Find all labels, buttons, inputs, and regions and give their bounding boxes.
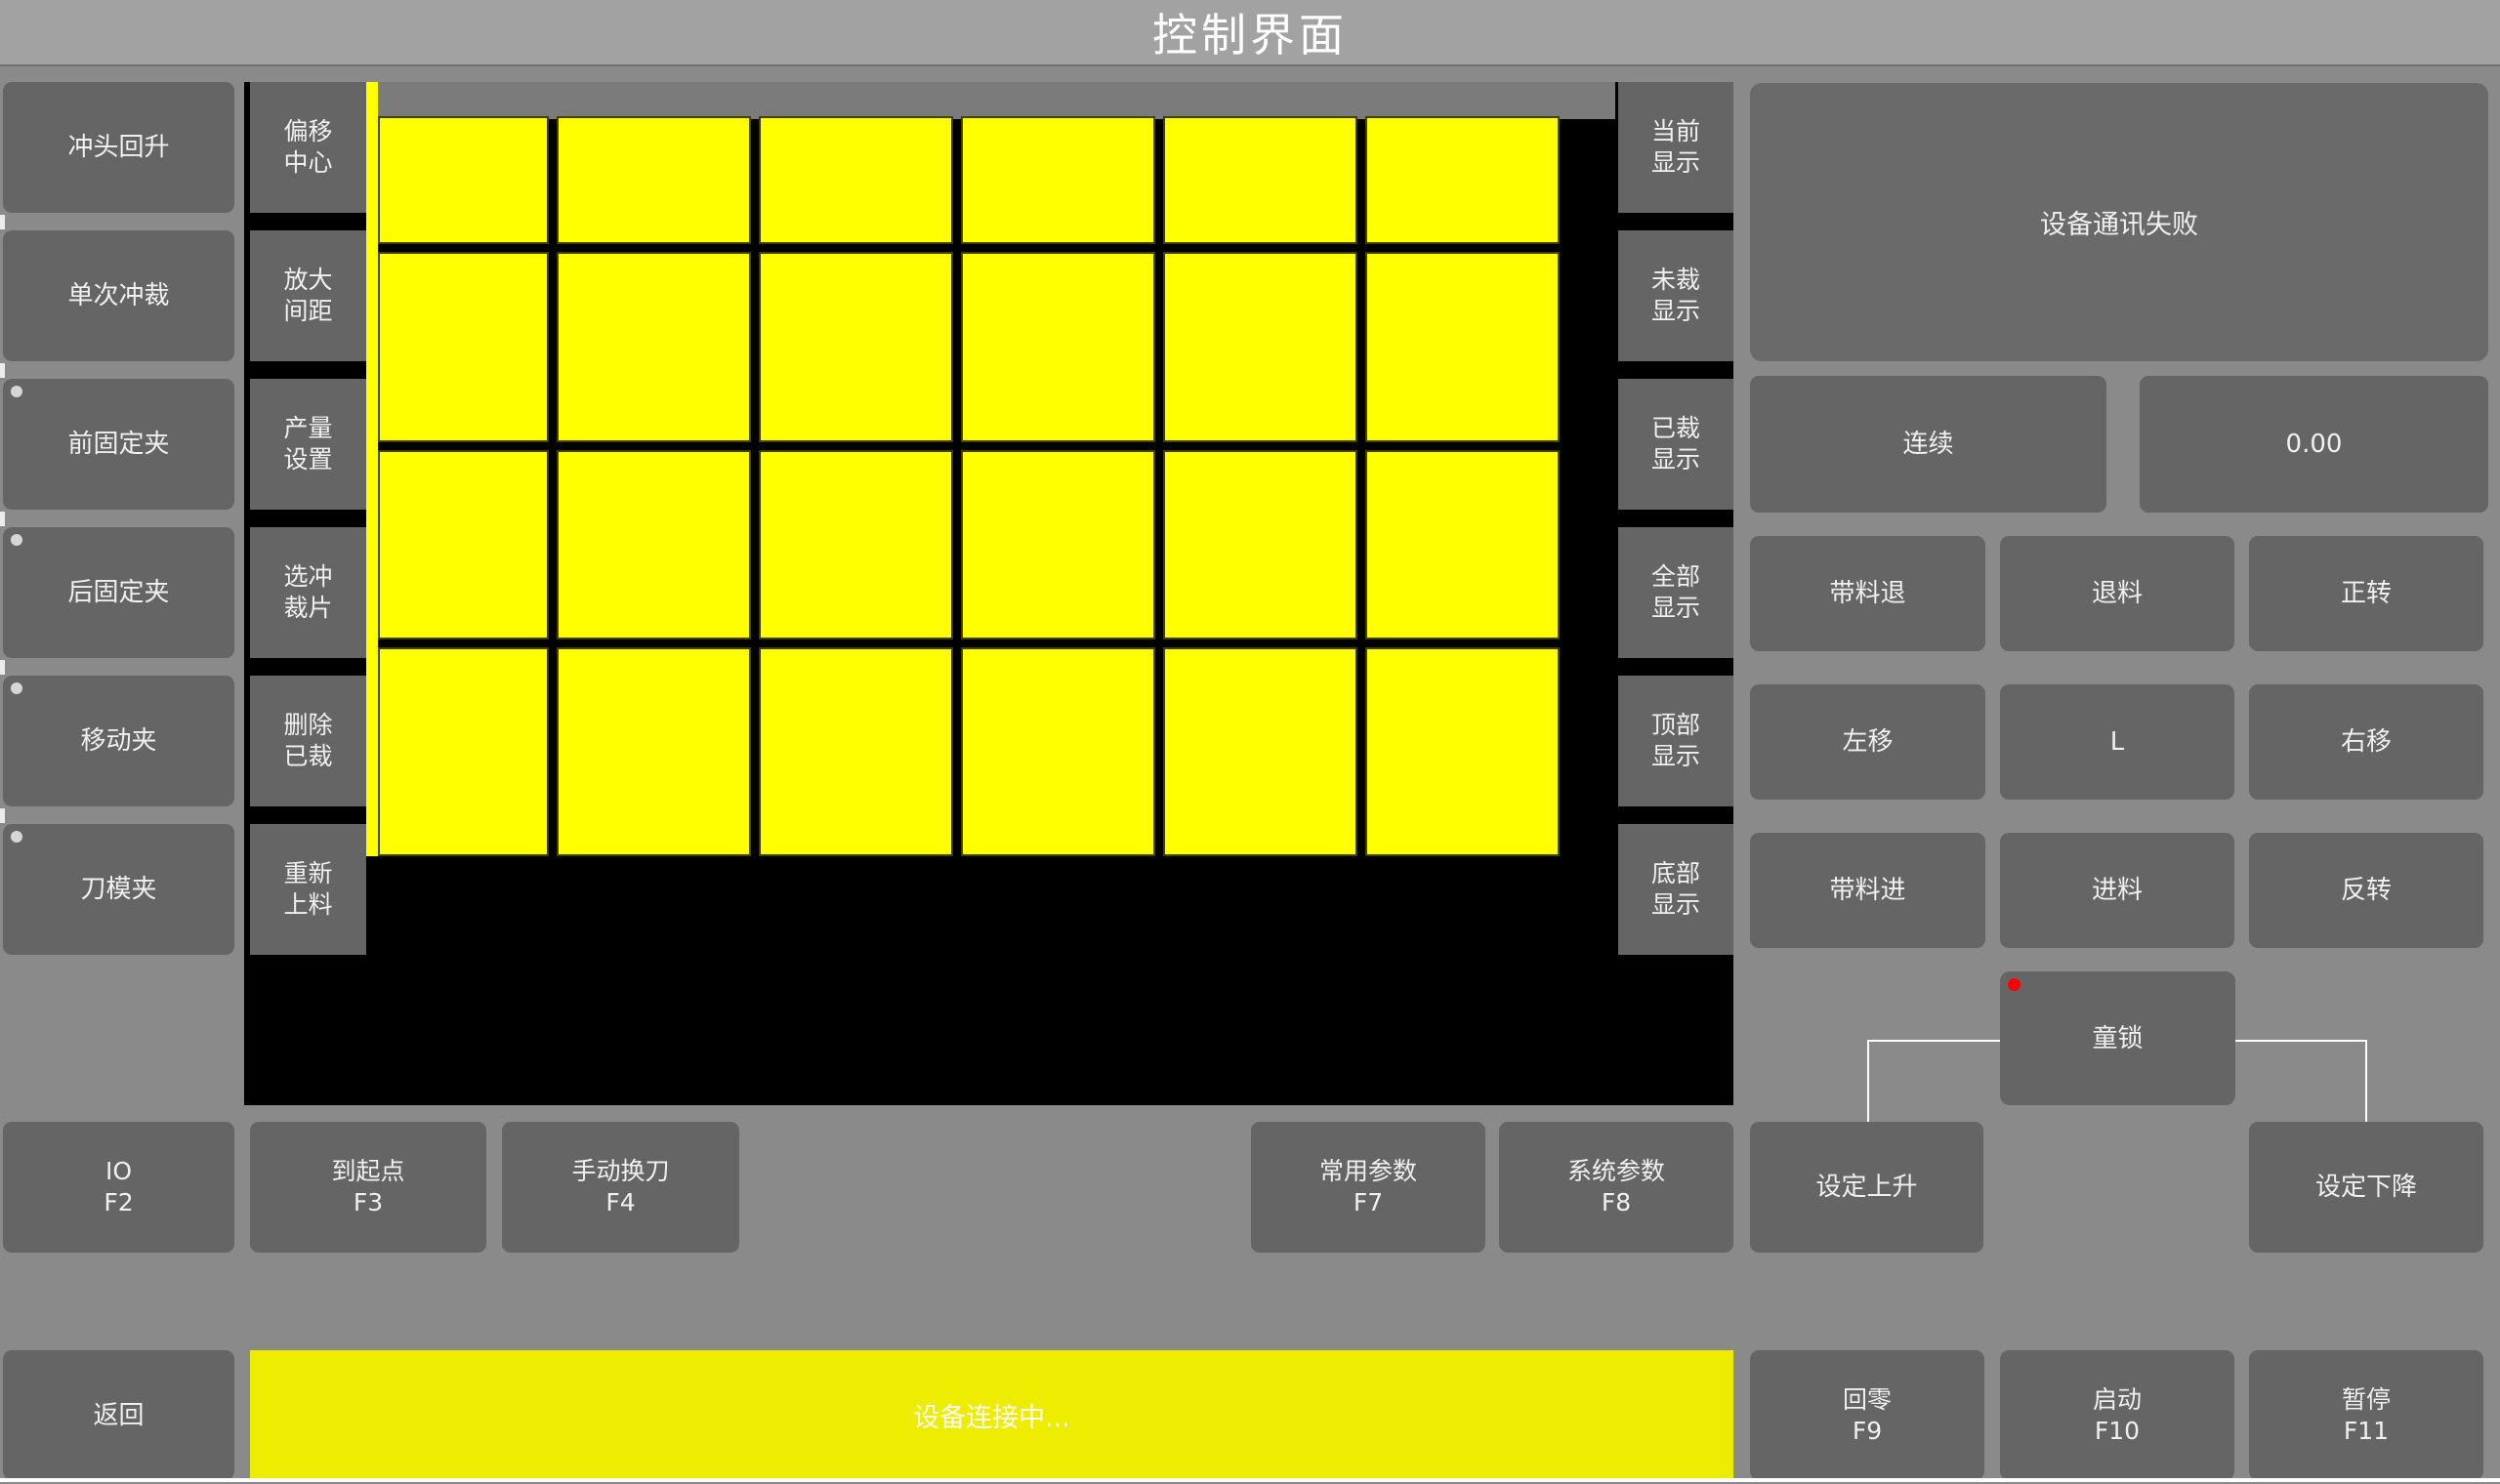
sheet-piece[interactable]: [1163, 252, 1357, 442]
to-origin-f3-button[interactable]: 到起点 F3: [250, 1122, 486, 1253]
sheet-piece[interactable]: [1365, 116, 1560, 244]
button-label: 显示: [1651, 147, 1700, 179]
button-label: 设定下降: [2315, 1172, 2417, 1203]
sheet-piece[interactable]: [759, 116, 953, 244]
manual-tool-change-f4-button[interactable]: 手动换刀 F4: [502, 1122, 739, 1253]
start-f10-button[interactable]: 启动 F10: [2000, 1350, 2234, 1480]
button-label: 暂停: [2342, 1384, 2391, 1416]
control-screen: 控制界面 冲头回升 单次冲裁 前固定夹 后固定夹 移动夹: [0, 0, 2500, 1484]
button-label: 常用参数: [1319, 1156, 1417, 1187]
button-label: 设定上升: [1815, 1172, 1917, 1203]
single-punch-button[interactable]: 单次冲裁: [3, 230, 234, 361]
button-label: 前固定夹: [67, 429, 169, 460]
sheet-piece[interactable]: [378, 116, 549, 244]
button-label: 显示: [1651, 444, 1700, 475]
button-label: 未裁: [1651, 265, 1700, 296]
button-label: 进料: [2092, 875, 2143, 906]
pause-f11-button[interactable]: 暂停 F11: [2249, 1350, 2483, 1480]
sheet-piece[interactable]: [759, 252, 953, 442]
button-label: 带料退: [1829, 578, 1905, 609]
yield-settings-button[interactable]: 产量 设置: [250, 379, 366, 510]
move-right-button[interactable]: 右移: [2249, 684, 2483, 800]
child-lock-indicator-dot: [2008, 978, 2021, 991]
sheet-piece[interactable]: [1365, 450, 1560, 639]
sheet-piece[interactable]: [557, 252, 751, 442]
button-label: 右移: [2341, 726, 2392, 758]
punch-return-button[interactable]: 冲头回升: [3, 82, 234, 213]
page-title: 控制界面: [1152, 0, 1348, 64]
feed-material-button[interactable]: 进料: [2000, 833, 2234, 948]
button-label: 到起点: [331, 1156, 404, 1187]
button-label: 间距: [283, 296, 332, 327]
button-label: 已裁: [283, 741, 332, 772]
child-lock-button[interactable]: 童锁: [2000, 971, 2235, 1105]
sheet-piece[interactable]: [378, 252, 549, 442]
sheet-piece[interactable]: [378, 450, 549, 639]
sheet-edge-strip: [366, 82, 378, 856]
button-label: 童锁: [2092, 1023, 2143, 1054]
button-label: 重新: [283, 858, 332, 889]
button-label: 移动夹: [80, 725, 156, 757]
sheet-piece[interactable]: [759, 647, 953, 856]
value-text: 0.00: [2286, 429, 2343, 460]
button-label: 回零: [1843, 1384, 1892, 1416]
button-label: IO: [105, 1156, 132, 1187]
edge-tick: [0, 512, 5, 526]
button-label: 后固定夹: [67, 577, 169, 608]
button-label: L: [2110, 726, 2125, 758]
fkey-label: F7: [1354, 1187, 1383, 1218]
fkey-label: F4: [605, 1187, 635, 1218]
system-params-f8-button[interactable]: 系统参数 F8: [1499, 1122, 1733, 1253]
button-label: 冲头回升: [67, 132, 169, 163]
button-label: 偏移: [283, 116, 332, 147]
button-label: 正转: [2341, 578, 2392, 609]
button-label: 手动换刀: [571, 1156, 669, 1187]
tool-button-column: 偏移 中心 放大 间距 产量 设置 选冲 裁片 删除 已裁 重新 上料: [250, 82, 366, 955]
button-label: 产量: [283, 413, 332, 444]
status-message: 设备通讯失败: [2040, 203, 2198, 241]
button-label: 放大: [283, 265, 332, 296]
button-label: 中心: [283, 147, 332, 179]
sheet-piece[interactable]: [1163, 116, 1357, 244]
sheet-piece-grid: [378, 116, 1560, 856]
fkey-label: F2: [104, 1187, 133, 1218]
enlarge-spacing-button[interactable]: 放大 间距: [250, 230, 366, 361]
home-zero-f9-button[interactable]: 回零 F9: [1750, 1350, 1984, 1480]
button-label: 单次冲裁: [67, 280, 169, 311]
offset-center-button[interactable]: 偏移 中心: [250, 82, 366, 213]
sheet-piece[interactable]: [557, 647, 751, 856]
button-label: 退料: [2092, 578, 2143, 609]
common-params-f7-button[interactable]: 常用参数 F7: [1251, 1122, 1485, 1253]
move-left-button[interactable]: 左移: [1750, 684, 1985, 800]
sheet-piece[interactable]: [1163, 647, 1357, 856]
button-label: 带料进: [1829, 875, 1905, 906]
value-display-field[interactable]: 0.00: [2140, 376, 2488, 513]
sheet-piece[interactable]: [1163, 450, 1357, 639]
sheet-piece[interactable]: [378, 647, 549, 856]
feed-forward-with-material-button[interactable]: 带料进: [1750, 833, 1985, 948]
sheet-piece[interactable]: [961, 647, 1155, 856]
l-button[interactable]: L: [2000, 684, 2234, 800]
show-uncut-button[interactable]: 未裁 显示: [1618, 230, 1733, 361]
button-label: 显示: [1651, 741, 1700, 772]
fkey-label: F3: [354, 1187, 383, 1218]
set-rise-button[interactable]: 设定上升: [1750, 1122, 1983, 1253]
rear-clamp-button[interactable]: 后固定夹: [3, 527, 234, 658]
edge-tick: [0, 363, 5, 378]
edge-tick: [0, 215, 5, 229]
button-label: 返回: [93, 1400, 144, 1431]
edge-tick: [0, 660, 5, 675]
set-lower-button[interactable]: 设定下降: [2249, 1122, 2483, 1253]
sheet-piece[interactable]: [961, 450, 1155, 639]
status-dot: [11, 682, 22, 694]
jog-control-grid: 带料退 退料 正转 左移 L 右移 带料进 进料 反转: [1750, 536, 2483, 948]
fkey-label: F11: [2344, 1416, 2389, 1447]
button-label: 左移: [1842, 726, 1893, 758]
reverse-rotation-button[interactable]: 反转: [2249, 833, 2483, 948]
button-label: 反转: [2341, 875, 2392, 906]
left-button-column: 冲头回升 单次冲裁 前固定夹 后固定夹 移动夹 刀模夹: [3, 82, 234, 955]
fkey-label: F10: [2095, 1416, 2140, 1447]
edge-tick: [0, 808, 5, 823]
button-label: 裁片: [283, 593, 332, 624]
retract-material-button[interactable]: 退料: [2000, 536, 2234, 651]
button-label: 顶部: [1651, 710, 1700, 741]
show-top-button[interactable]: 顶部 显示: [1618, 676, 1733, 806]
button-label: 底部: [1651, 858, 1700, 889]
sheet-canvas[interactable]: [244, 82, 1733, 1105]
sheet-piece[interactable]: [961, 116, 1155, 244]
continuous-mode-button[interactable]: 连续: [1750, 376, 2106, 513]
connection-status-bar: 设备连接中...: [250, 1350, 1733, 1480]
button-label: 当前: [1651, 116, 1700, 147]
device-status-message-box: 设备通讯失败: [1750, 83, 2488, 361]
delete-cut-button[interactable]: 删除 已裁: [250, 676, 366, 806]
button-label: 显示: [1651, 593, 1700, 624]
moving-clamp-button[interactable]: 移动夹: [3, 676, 234, 806]
show-bottom-button[interactable]: 底部 显示: [1618, 824, 1733, 955]
status-dot: [11, 534, 22, 546]
io-f2-button[interactable]: IO F2: [3, 1122, 234, 1253]
sheet-piece[interactable]: [557, 450, 751, 639]
sheet-piece[interactable]: [1365, 252, 1560, 442]
show-cut-button[interactable]: 已裁 显示: [1618, 379, 1733, 510]
back-button[interactable]: 返回: [3, 1350, 234, 1480]
status-dot: [11, 831, 22, 843]
button-label: 系统参数: [1567, 1156, 1665, 1187]
front-clamp-button[interactable]: 前固定夹: [3, 379, 234, 510]
sheet-piece[interactable]: [759, 450, 953, 639]
button-label: 设置: [283, 444, 332, 475]
show-current-button[interactable]: 当前 显示: [1618, 82, 1733, 213]
button-label: 刀模夹: [80, 874, 156, 905]
button-label: 连续: [1902, 429, 1953, 460]
display-button-column: 当前 显示 未裁 显示 已裁 显示 全部 显示 顶部 显示 底部 显示: [1618, 82, 1733, 955]
canvas-top-mask: [376, 82, 1615, 119]
sheet-piece[interactable]: [557, 116, 751, 244]
button-label: 全部: [1651, 561, 1700, 593]
button-label: 删除: [283, 710, 332, 741]
fkey-label: F9: [1853, 1416, 1882, 1447]
sheet-piece[interactable]: [1365, 647, 1560, 856]
forward-rotation-button[interactable]: 正转: [2249, 536, 2483, 651]
status-dot: [11, 386, 22, 397]
title-bar: 控制界面: [0, 0, 2500, 66]
reload-material-button[interactable]: 重新 上料: [250, 824, 366, 955]
feed-back-with-material-button[interactable]: 带料退: [1750, 536, 1985, 651]
button-label: 上料: [283, 889, 332, 921]
button-label: 显示: [1651, 296, 1700, 327]
show-all-button[interactable]: 全部 显示: [1618, 527, 1733, 658]
select-piece-button[interactable]: 选冲 裁片: [250, 527, 366, 658]
bottom-edge-strip: [0, 1478, 2500, 1482]
button-label: 启动: [2093, 1384, 2142, 1416]
button-label: 选冲: [283, 561, 332, 593]
sheet-piece[interactable]: [961, 252, 1155, 442]
button-label: 显示: [1651, 889, 1700, 921]
connection-status-text: 设备连接中...: [913, 1396, 1070, 1434]
die-clamp-button[interactable]: 刀模夹: [3, 824, 234, 955]
fkey-label: F8: [1602, 1187, 1631, 1218]
button-label: 已裁: [1651, 413, 1700, 444]
